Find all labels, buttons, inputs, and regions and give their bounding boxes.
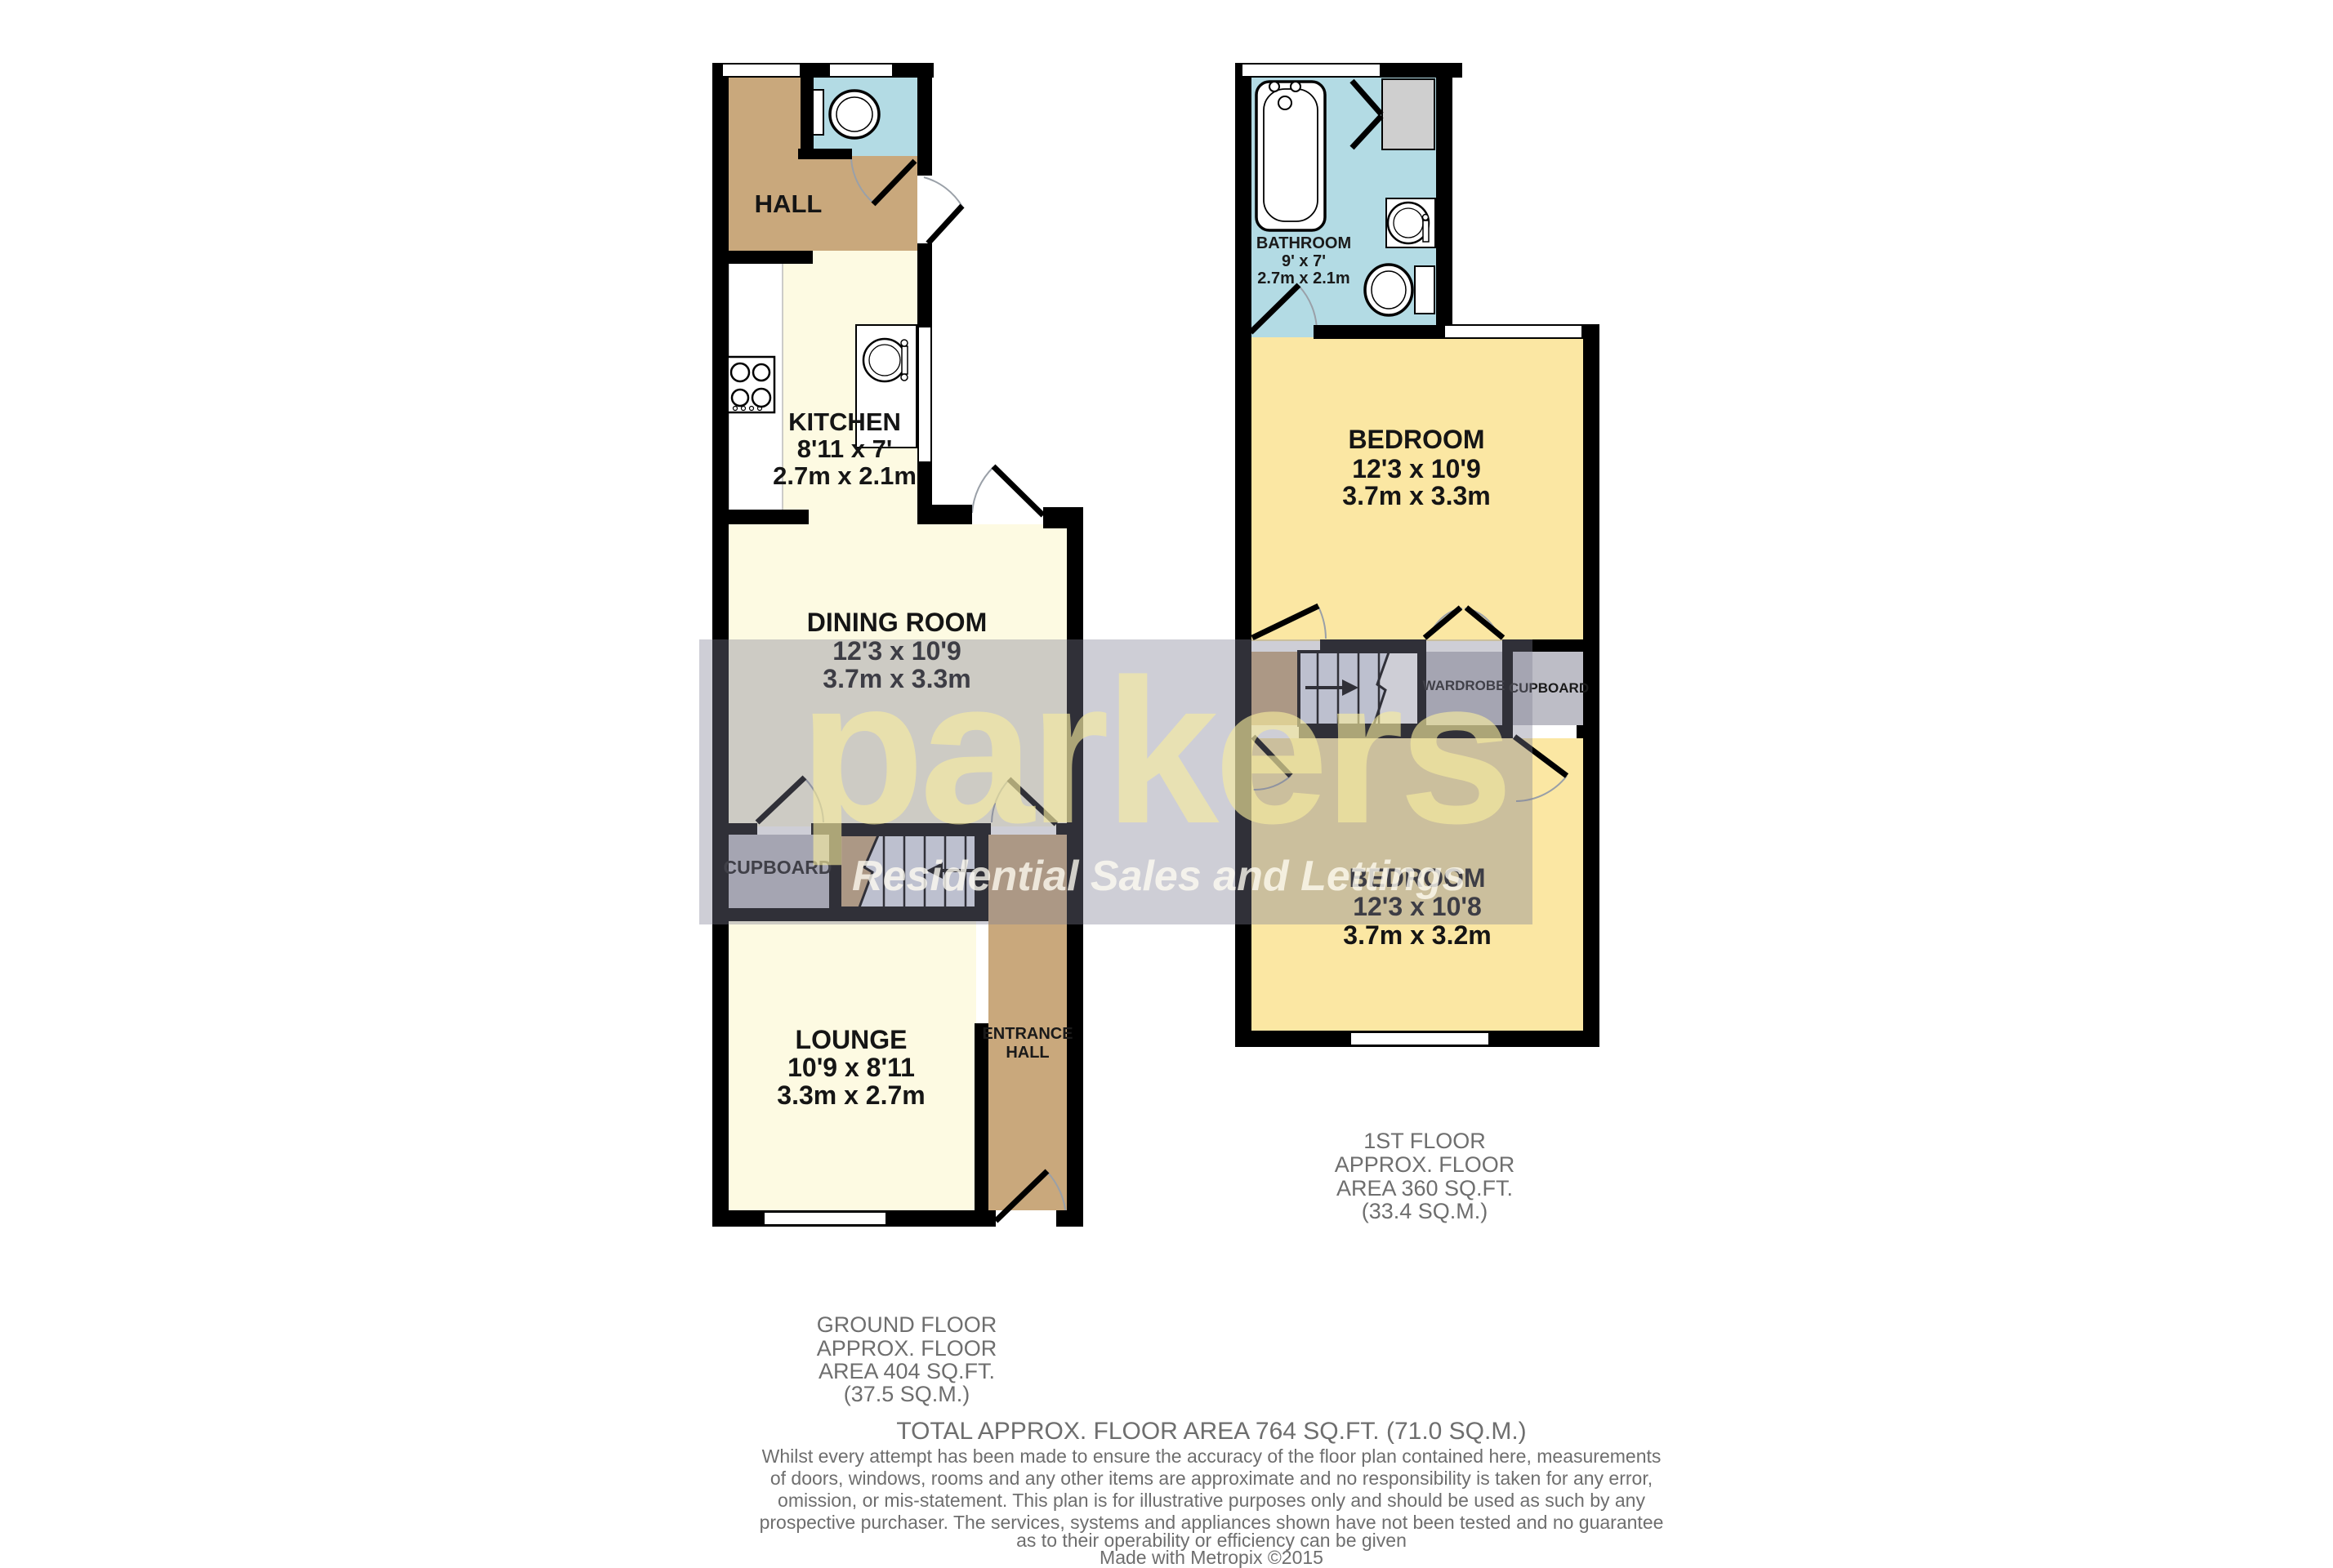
bedroom-front-dims-m: 3.7m x 3.3m	[1342, 481, 1490, 510]
bath-tap	[1291, 82, 1300, 91]
hall-external-door-arc	[924, 177, 962, 207]
back-door-leaf	[993, 466, 1043, 515]
disclaimer-line3: omission, or mis-statement. This plan is…	[778, 1490, 1645, 1511]
watermark-tagline: Residential Sales and Lettings	[852, 853, 1465, 900]
bath-tap	[1269, 82, 1279, 91]
bath-plug	[1278, 96, 1291, 109]
wall	[1436, 63, 1452, 339]
ground-floor-caption-line3: AREA 404 SQ.FT.	[819, 1359, 995, 1383]
ground-floor-caption-line2: APPROX. FLOOR	[817, 1336, 997, 1361]
wall	[975, 1023, 988, 1211]
metropix-credit: Made with Metropix ©2015	[1100, 1547, 1323, 1568]
first-floor-caption-line2: APPROX. FLOOR	[1335, 1152, 1515, 1177]
window	[918, 327, 931, 462]
window	[1242, 64, 1381, 77]
entrance-hall-label-line2: HALL	[1006, 1044, 1049, 1062]
bathroom-label: BATHROOM	[1256, 234, 1351, 252]
hall-external-door-leaf	[928, 206, 962, 243]
first-floor-caption-line1: 1ST FLOOR	[1363, 1129, 1486, 1153]
ground-floor-caption-line4: (37.5 SQ.M.)	[844, 1382, 970, 1406]
basin-tap-knob	[1423, 215, 1429, 220]
window	[722, 64, 801, 77]
wall	[917, 243, 932, 327]
window	[1444, 325, 1582, 338]
ground-floor-caption-line1: GROUND FLOOR	[817, 1312, 997, 1337]
kitchen-label: KITCHEN	[788, 408, 901, 436]
kitchen-dims-m: 2.7m x 2.1m	[773, 461, 917, 490]
wall	[1577, 725, 1599, 738]
kitchen-sink-icon	[863, 339, 906, 381]
toilet-cistern-icon-1f	[1415, 266, 1434, 314]
lounge-label: LOUNGE	[796, 1025, 908, 1054]
wall	[917, 505, 972, 524]
bathroom-dims-m: 2.7m x 2.1m	[1257, 269, 1349, 287]
wall	[1314, 325, 1436, 339]
window	[829, 64, 893, 77]
floorplan-page: HALL KITCHEN 8'11 x 7' 2.7m x 2.1m DININ…	[0, 0, 2333, 1568]
first-floor-caption-line3: AREA 360 SQ.FT.	[1336, 1176, 1513, 1200]
dining-label: DINING ROOM	[807, 608, 987, 637]
floorplan-drawing: HALL KITCHEN 8'11 x 7' 2.7m x 2.1m DININ…	[0, 0, 2333, 1568]
disclaimer-line2: of doors, windows, rooms and any other i…	[770, 1468, 1653, 1489]
bedroom-front-dims-ft: 12'3 x 10'9	[1352, 454, 1481, 483]
kitchen-tap-knob	[901, 374, 908, 381]
wall	[712, 510, 809, 524]
watermark-brand: parkers	[799, 637, 1509, 866]
wall	[917, 63, 932, 176]
bedroom-front-label: BEDROOM	[1348, 425, 1484, 454]
basin-tap-icon	[1423, 220, 1429, 242]
bedroom-back-dims-m: 3.7m x 3.2m	[1343, 920, 1491, 950]
lounge-dims-ft: 10'9 x 8'11	[787, 1053, 915, 1082]
airing-cupboard	[1382, 79, 1434, 149]
total-area-text: TOTAL APPROX. FLOOR AREA 764 SQ.FT. (71.…	[896, 1418, 1526, 1445]
entrance-hall-label-line1: ENTRANCE	[982, 1025, 1073, 1043]
window	[1350, 1032, 1489, 1045]
hall-label: HALL	[755, 189, 823, 218]
disclaimer-line1: Whilst every attempt has been made to en…	[762, 1445, 1662, 1467]
lounge-dims-m: 3.3m x 2.7m	[777, 1080, 925, 1110]
window	[764, 1212, 886, 1225]
wall	[1056, 1210, 1083, 1227]
back-door-arc	[972, 467, 993, 513]
wall	[798, 149, 852, 159]
watermark: parkers Residential Sales and Lettings	[699, 637, 1532, 924]
first-floor-caption-line4: (33.4 SQ.M.)	[1362, 1199, 1488, 1223]
bathroom-dims-ft: 9' x 7'	[1282, 252, 1326, 270]
kitchen-tap-knob	[901, 340, 908, 346]
kitchen-tap-icon	[902, 346, 908, 374]
kitchen-dims-ft: 8'11 x 7'	[797, 434, 892, 463]
wall	[801, 78, 814, 159]
wall	[712, 251, 813, 264]
